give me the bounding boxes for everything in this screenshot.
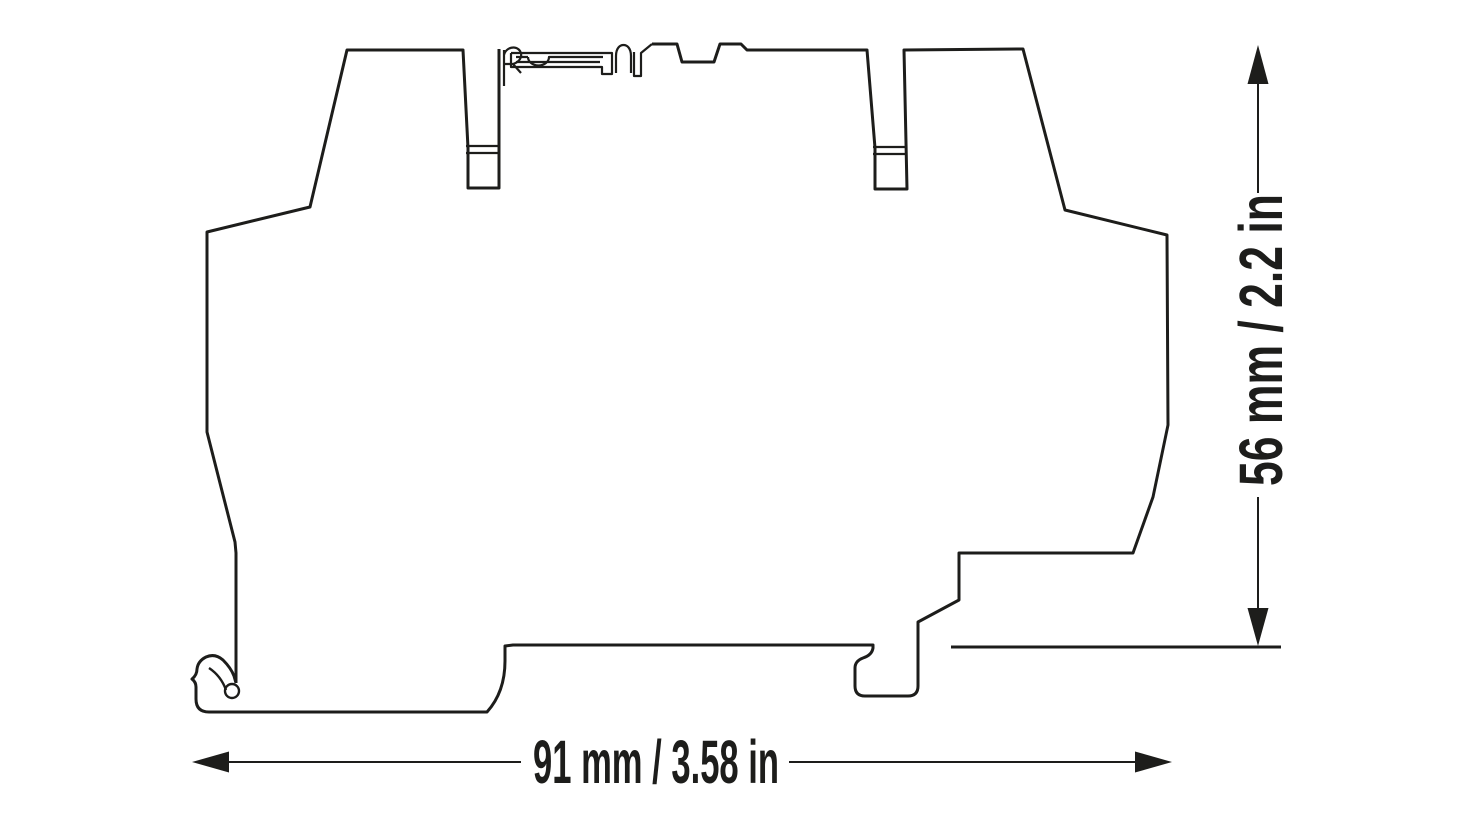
release-lever-detail (209, 668, 226, 690)
release-lever-hole (225, 684, 239, 698)
module-outline-main (192, 44, 1168, 712)
din-latch-detail (504, 44, 652, 86)
stroke-layer (192, 44, 1281, 762)
technical-drawing-canvas: 91 mm / 3.58 in 56 mm / 2.2 in (0, 0, 1467, 821)
height-arrowhead-bottom (1248, 608, 1269, 646)
height-dimension-label: 56 mm / 2.2 in (1227, 194, 1295, 486)
fill-layer: 91 mm / 3.58 in 56 mm / 2.2 in (192, 45, 1295, 796)
width-arrowhead-right (1135, 752, 1172, 773)
height-arrowhead-top (1248, 45, 1269, 84)
width-arrowhead-left (192, 752, 229, 773)
width-dimension-label: 91 mm / 3.58 in (533, 728, 779, 796)
slot-detail-lines (466, 146, 907, 154)
module-outline-left (207, 49, 499, 683)
drawing-stage: 91 mm / 3.58 in 56 mm / 2.2 in (0, 0, 1467, 821)
